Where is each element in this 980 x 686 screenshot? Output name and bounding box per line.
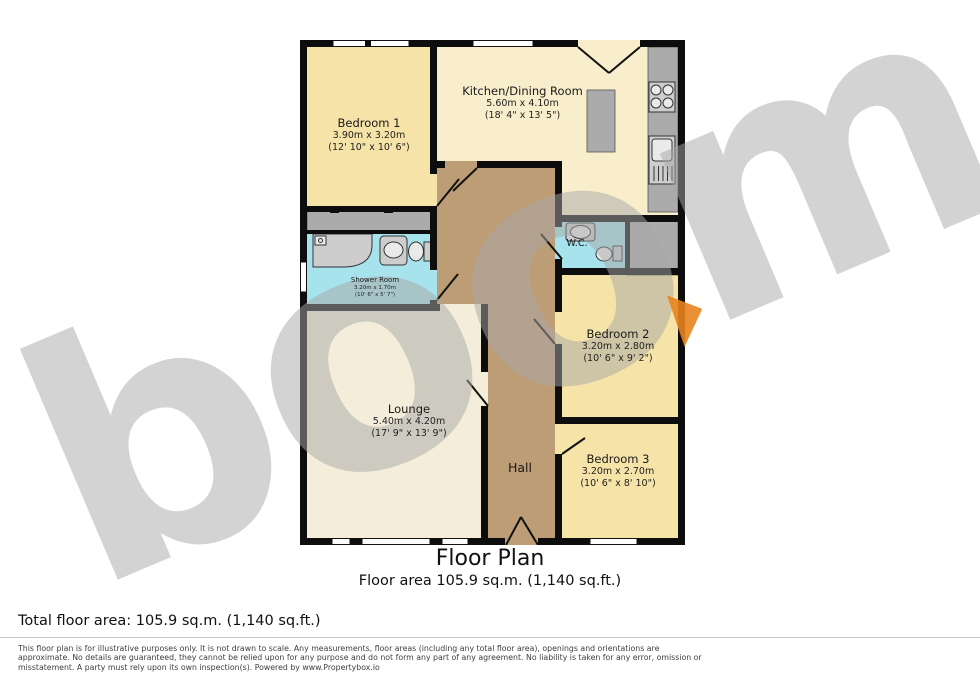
- footer-divider: [0, 637, 980, 638]
- total-floor-area: Total floor area: 105.9 sq.m. (1,140 sq.…: [18, 613, 321, 629]
- wc-label: W.C.: [556, 238, 598, 250]
- disclaimer-text: This floor plan is for illustrative purp…: [18, 644, 758, 672]
- hall-label: Hall: [490, 460, 550, 476]
- kitchen-label: Kitchen/Dining Room 5.60m x 4.10m (18' 4…: [440, 84, 605, 122]
- bedroom1-label: Bedroom 1 3.90m x 3.20m (12' 10" x 10' 6…: [309, 116, 429, 154]
- page-title: Floor Plan: [0, 546, 980, 571]
- shower-room-label: Shower Room 3.20m x 1.70m (10' 6" x 5' 7…: [320, 276, 430, 299]
- bedroom3-label: Bedroom 3 3.20m x 2.70m (10' 6" x 8' 10"…: [556, 452, 680, 490]
- lounge-label: Lounge 5.40m x 4.20m (17' 9" x 13' 9"): [348, 402, 470, 440]
- floor-area-subtitle: Floor area 105.9 sq.m. (1,140 sq.ft.): [0, 573, 980, 589]
- bedroom2-label: Bedroom 2 3.20m x 2.80m (10' 6" x 9' 2"): [558, 327, 678, 365]
- floorplan-page: boom: [0, 0, 980, 686]
